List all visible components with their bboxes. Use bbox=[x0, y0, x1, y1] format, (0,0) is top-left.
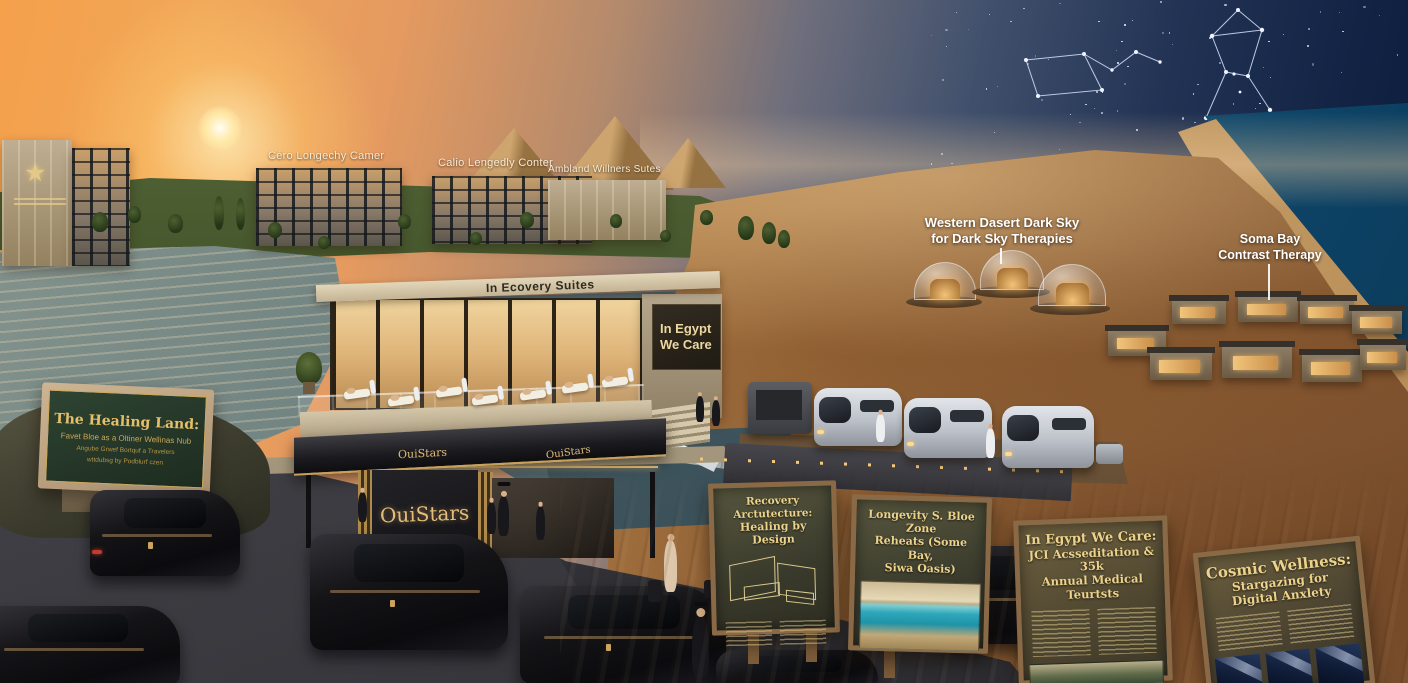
staff-silhouette bbox=[536, 506, 545, 540]
board1-title-line2: Healing by Design bbox=[720, 519, 827, 548]
board4-night-photo-1 bbox=[1215, 654, 1264, 683]
board2-title-line2: Reheats (Some Bay, bbox=[861, 534, 980, 563]
chauffeur-foreground bbox=[692, 616, 709, 678]
board2-title-line3: Siwa Oasis) bbox=[861, 560, 979, 576]
chauffeur bbox=[498, 496, 509, 536]
board4-night-photo-2 bbox=[1265, 648, 1314, 683]
board1-room-diagram bbox=[723, 552, 827, 615]
board4-text-column-2 bbox=[1287, 604, 1354, 645]
staff-silhouette bbox=[487, 502, 496, 534]
walkway-person bbox=[696, 396, 704, 422]
board1-text-column-2 bbox=[780, 619, 827, 644]
board-recovery-architecture: Recovery Arctutecture: Healing by Design bbox=[708, 480, 840, 635]
board2-oasis-photo bbox=[859, 580, 981, 651]
board4-night-photo-3 bbox=[1316, 643, 1365, 683]
board3-title-line3: Annual Medical Teurtsts bbox=[1026, 572, 1159, 604]
board-longevity-blue-zone: Longevity S. Bloe Zone Reheats (Some Bay… bbox=[848, 494, 992, 654]
board1-title-line1: Recovery Arctutecture: bbox=[719, 494, 826, 522]
board3-text-column-1 bbox=[1031, 609, 1091, 657]
staff-silhouette bbox=[358, 492, 367, 522]
board2-title-line1: Longevity S. Bloe Zone bbox=[862, 507, 981, 536]
board-cosmic-wellness: Cosmic Wellness: Stargazing for Digital … bbox=[1193, 536, 1376, 683]
medical-staff bbox=[986, 428, 995, 458]
luggage bbox=[648, 580, 662, 602]
board2-leg bbox=[884, 648, 895, 678]
egypt-wellness-collage: ★ Céro Longechy Camer Calio Lengedly Con… bbox=[0, 0, 1408, 683]
walkway-person bbox=[712, 400, 720, 426]
board3-text-column-2 bbox=[1097, 607, 1157, 655]
board-in-egypt-we-care: In Egypt We Care: JCI Acsseditation & 35… bbox=[1013, 515, 1173, 683]
board3-landscape-photo bbox=[1029, 659, 1164, 683]
board4-text-column-1 bbox=[1216, 611, 1283, 652]
guest-woman-beige bbox=[664, 540, 677, 592]
medical-staff bbox=[876, 414, 885, 442]
board1-text-column-1 bbox=[726, 621, 773, 646]
